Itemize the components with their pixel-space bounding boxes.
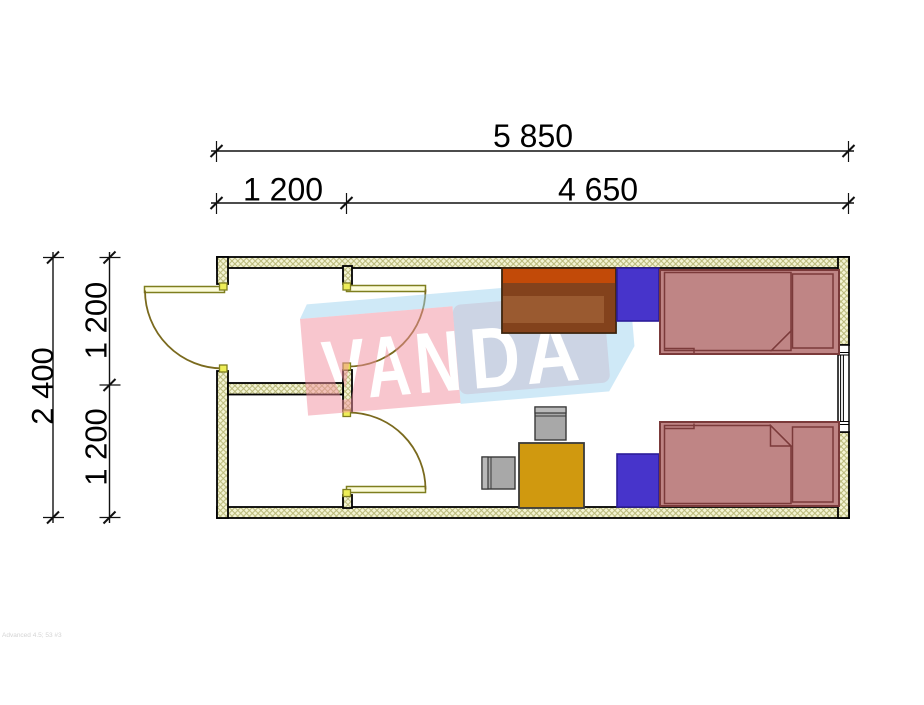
svg-text:4 650: 4 650 — [558, 172, 638, 208]
svg-text:1 200: 1 200 — [79, 282, 114, 360]
svg-text:2 400: 2 400 — [25, 347, 60, 425]
svg-text:Advanced 4.5; 53 #3: Advanced 4.5; 53 #3 — [2, 632, 62, 639]
svg-text:5 850: 5 850 — [493, 118, 573, 154]
svg-text:1 200: 1 200 — [243, 172, 323, 208]
svg-text:1 200: 1 200 — [79, 408, 114, 486]
